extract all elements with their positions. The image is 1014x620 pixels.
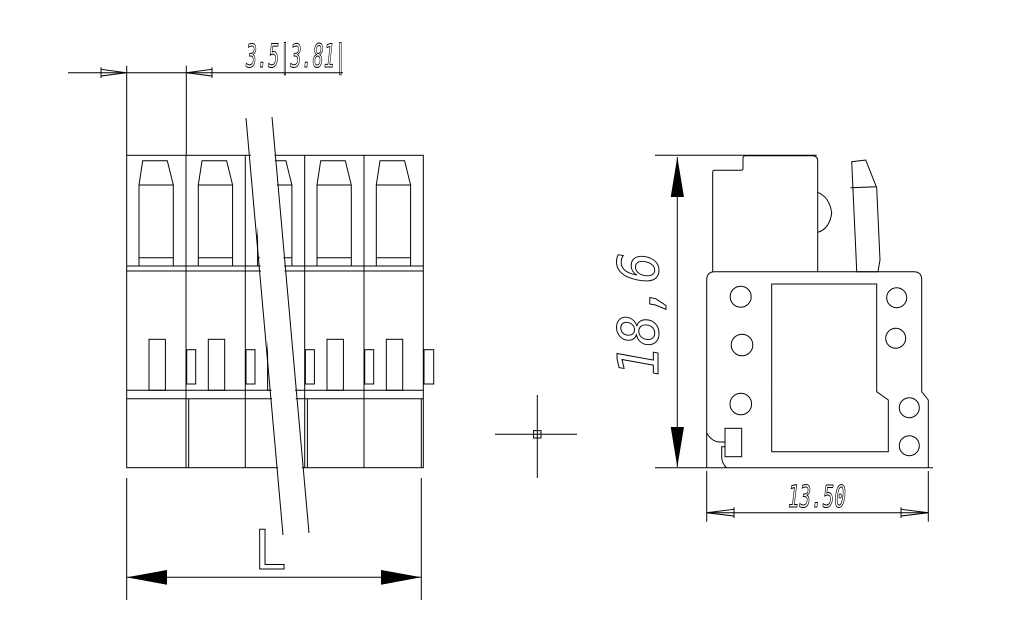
height-dimension: 18,6 bbox=[607, 155, 817, 467]
height-dimension-text: 18,6 bbox=[607, 252, 672, 377]
front-view bbox=[127, 116, 434, 535]
foot-block bbox=[725, 428, 742, 456]
latch-slot bbox=[208, 339, 224, 390]
depth-dimension-text: 13.50 bbox=[788, 480, 846, 515]
upper-housing-outline bbox=[713, 156, 818, 272]
length-dimension: L bbox=[127, 478, 422, 600]
length-dimension-text: L bbox=[254, 519, 287, 582]
inner-cutout bbox=[772, 284, 889, 452]
pitch-dimension: 3.5|3.81| bbox=[68, 37, 346, 155]
hole bbox=[730, 286, 751, 307]
hole bbox=[730, 393, 752, 415]
solid-arrowhead bbox=[381, 570, 421, 585]
drawing-canvas: 3.5|3.81| L bbox=[0, 0, 1014, 620]
hole bbox=[886, 328, 906, 348]
hole bbox=[731, 334, 753, 356]
latch-slot bbox=[149, 339, 165, 390]
center-mark bbox=[495, 395, 577, 478]
funnel bbox=[139, 161, 173, 266]
holes bbox=[730, 286, 919, 456]
break-lines bbox=[246, 116, 309, 535]
solid-arrowhead bbox=[127, 570, 167, 585]
technical-drawing: 3.5|3.81| L bbox=[0, 0, 1014, 620]
solid-arrowhead bbox=[671, 427, 684, 467]
funnel bbox=[376, 161, 410, 266]
lower-block-outline bbox=[707, 272, 929, 468]
hole bbox=[887, 288, 907, 308]
lever bbox=[852, 160, 880, 272]
foot-arc bbox=[707, 433, 725, 442]
funnel bbox=[317, 161, 351, 266]
latch-slot-narrow bbox=[365, 350, 374, 384]
side-view bbox=[655, 156, 933, 468]
latch-slot bbox=[327, 339, 343, 390]
latch-bump bbox=[818, 192, 832, 232]
lever-joint-line bbox=[851, 187, 877, 188]
hole bbox=[899, 436, 919, 456]
latch-slot-narrow bbox=[305, 350, 314, 384]
side-tab bbox=[424, 350, 434, 384]
latch-slot-narrow bbox=[187, 350, 196, 384]
funnel bbox=[198, 161, 232, 266]
depth-dimension: 13.50 bbox=[707, 471, 929, 522]
solid-arrowhead bbox=[671, 157, 684, 197]
latch-slot-narrow bbox=[246, 350, 255, 384]
foot-detail bbox=[707, 428, 742, 467]
hole bbox=[899, 398, 919, 418]
latch-slot bbox=[386, 339, 402, 390]
pitch-dimension-text: 3.5|3.81| bbox=[245, 37, 346, 75]
foot-notch bbox=[722, 447, 727, 468]
